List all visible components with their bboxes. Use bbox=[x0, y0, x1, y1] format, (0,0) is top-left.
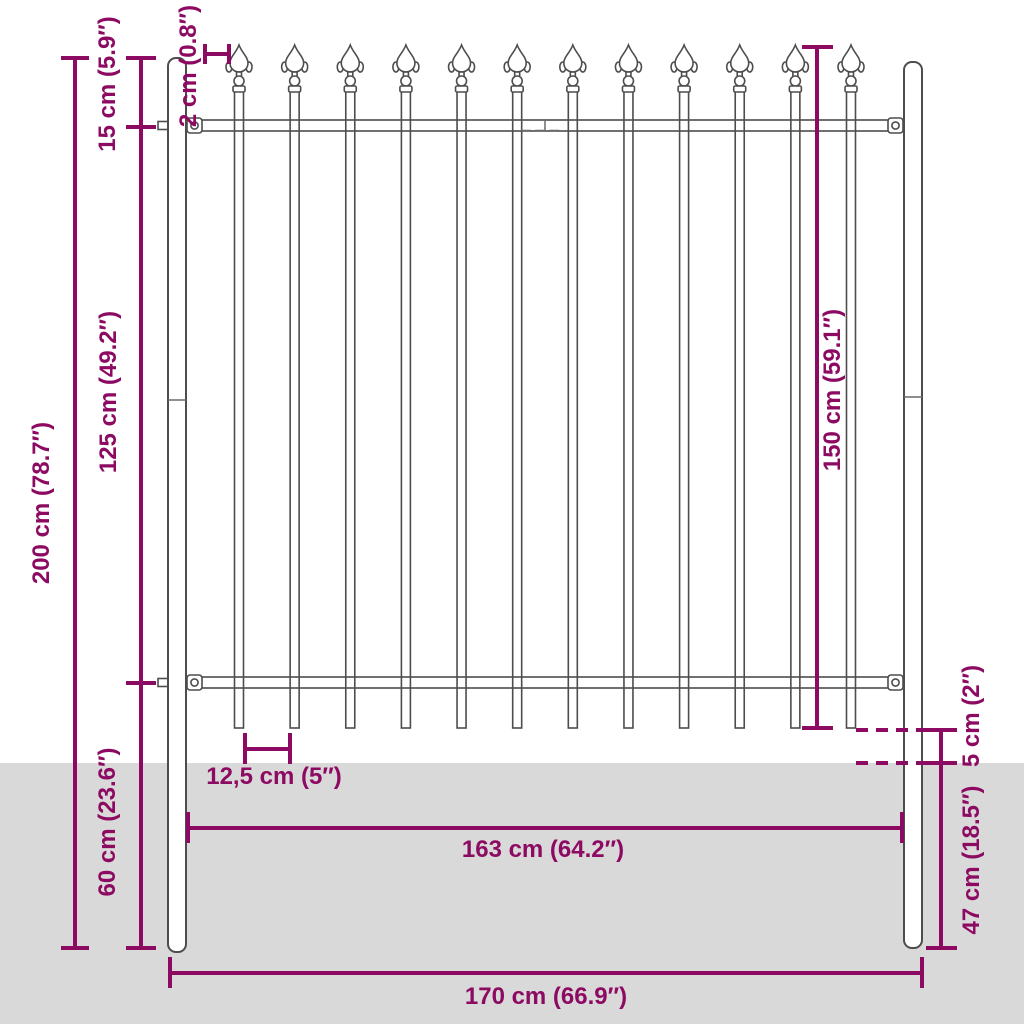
dim-post-in-ground-label: 47 cm (18.5″) bbox=[960, 786, 984, 935]
picket bbox=[226, 45, 252, 728]
spear-tip-icon bbox=[508, 45, 526, 72]
dim-post-in-ground-line bbox=[926, 763, 957, 948]
pickets-group bbox=[226, 45, 864, 728]
dim-picket-spacing-label: 12,5 cm (5″) bbox=[206, 765, 342, 789]
picket bbox=[560, 45, 586, 728]
picket bbox=[282, 45, 308, 728]
picket bbox=[504, 45, 530, 728]
dim-total-width-label: 170 cm (66.9″) bbox=[465, 985, 627, 1009]
post-joints bbox=[168, 397, 922, 400]
spear-tip-icon bbox=[286, 45, 304, 72]
dim-spear-to-rail-label: 15 cm (5.9″) bbox=[96, 16, 120, 152]
picket bbox=[393, 45, 419, 728]
right-post bbox=[904, 62, 922, 948]
dim-post-below-rail-label: 60 cm (23.6″) bbox=[96, 748, 120, 897]
spear-tip-icon bbox=[230, 45, 248, 72]
dim-total-height-label: 200 cm (78.7″) bbox=[30, 422, 54, 584]
dim-ground-gap-label: 5 cm (2″) bbox=[960, 665, 984, 767]
picket bbox=[782, 45, 808, 728]
spear-tip-icon bbox=[842, 45, 860, 72]
left-post bbox=[168, 58, 186, 952]
dim-rail-to-rail-label: 125 cm (49.2″) bbox=[97, 311, 121, 473]
dim-panel-height-label: 150 cm (59.1″) bbox=[821, 309, 845, 471]
dim-picket-thickness-line bbox=[205, 44, 229, 64]
dim-extension-dashed-lines bbox=[856, 730, 936, 763]
dim-left-segments-line bbox=[126, 58, 156, 948]
picket bbox=[615, 45, 641, 728]
spear-tip-icon bbox=[397, 45, 415, 72]
picket bbox=[727, 45, 753, 728]
dim-panel-width-label: 163 cm (64.2″) bbox=[462, 838, 624, 862]
spear-tip-icon bbox=[564, 45, 582, 72]
spear-tip-icon bbox=[453, 45, 471, 72]
dim-ground-gap-line bbox=[926, 730, 957, 763]
spear-tip-icon bbox=[731, 45, 749, 72]
spear-tip-icon bbox=[675, 45, 693, 72]
dim-picket-thickness-label: 2 cm (0.8″) bbox=[177, 5, 201, 127]
picket bbox=[671, 45, 697, 728]
fence-dimension-diagram: 200 cm (78.7″) 15 cm (5.9″) 125 cm (49.2… bbox=[0, 0, 1024, 1024]
picket bbox=[449, 45, 475, 728]
spear-tip-icon bbox=[341, 45, 359, 72]
dim-picket-spacing-line bbox=[245, 733, 290, 764]
picket bbox=[337, 45, 363, 728]
dim-total-height-line bbox=[61, 58, 89, 948]
fence-drawing bbox=[0, 0, 1024, 1024]
spear-tip-icon bbox=[786, 45, 804, 72]
spear-tip-icon bbox=[619, 45, 637, 72]
